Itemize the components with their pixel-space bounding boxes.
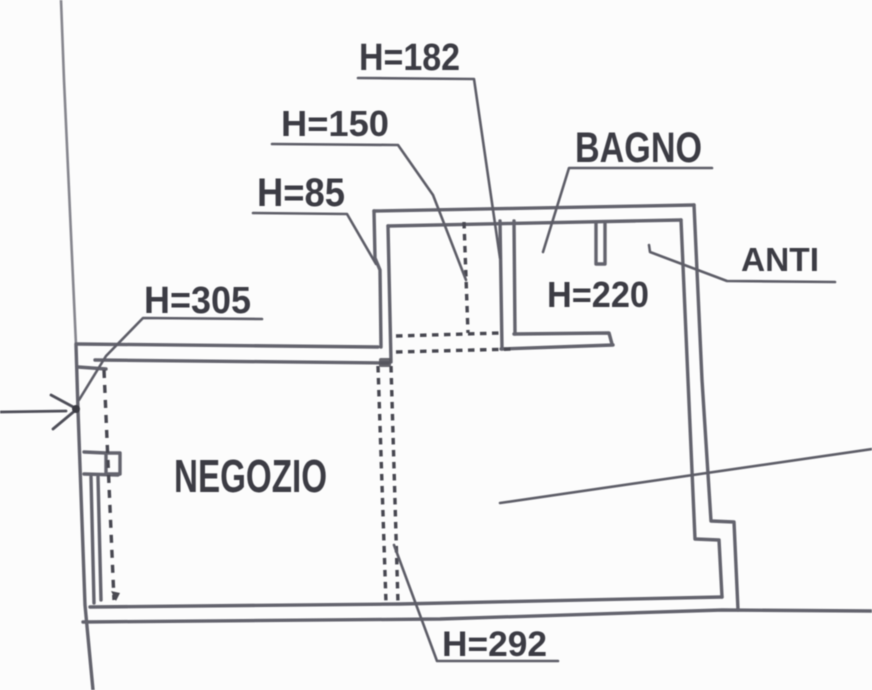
- svg-text:ANTI: ANTI: [741, 241, 819, 278]
- svg-text:H=182: H=182: [359, 37, 460, 79]
- svg-text:H=150: H=150: [281, 103, 389, 144]
- svg-text:NEGOZIO: NEGOZIO: [174, 450, 327, 502]
- svg-text:BAGNO: BAGNO: [575, 124, 702, 172]
- svg-text:H=85: H=85: [257, 171, 345, 215]
- svg-text:H=305: H=305: [144, 280, 251, 322]
- svg-text:H=220: H=220: [547, 274, 649, 315]
- svg-text:H=292: H=292: [442, 625, 547, 664]
